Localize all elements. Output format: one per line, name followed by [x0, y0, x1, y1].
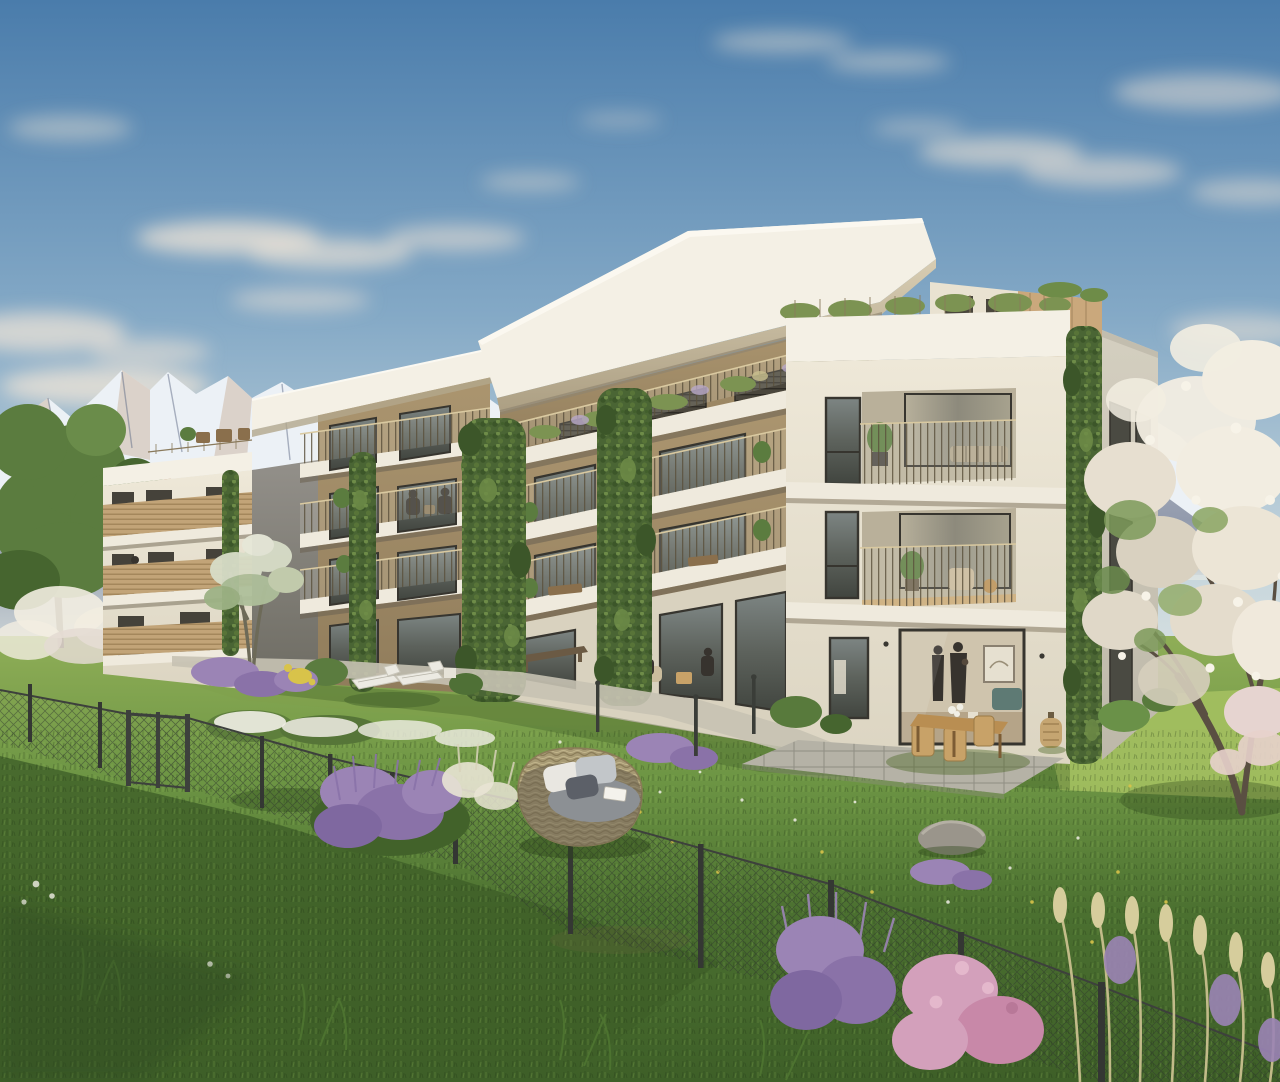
fence-gate — [126, 710, 190, 792]
corner-front-face — [786, 356, 1070, 764]
rendering-canvas — [0, 0, 1280, 1082]
architectural-rendering: Photorealistic architectural rendering o… — [0, 0, 1280, 1082]
boulder — [918, 821, 986, 858]
